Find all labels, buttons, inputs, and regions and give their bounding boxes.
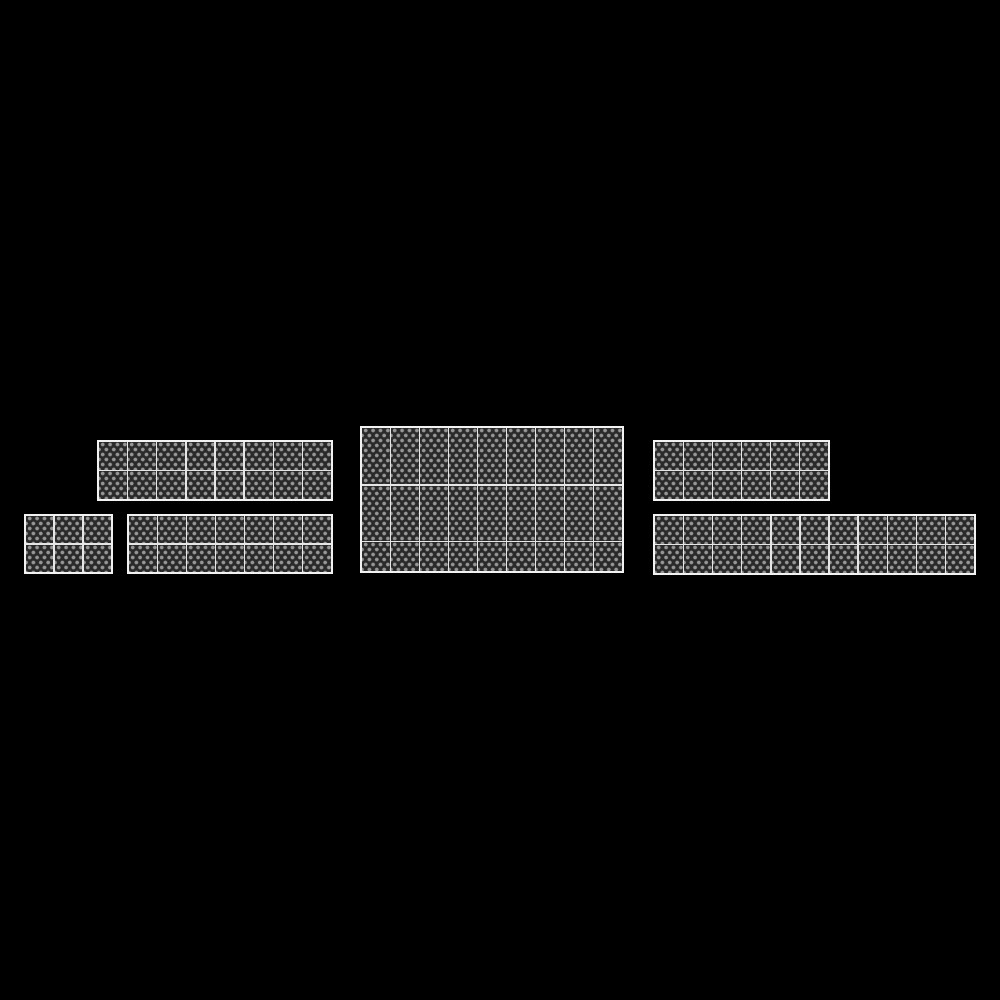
solar-panel-cell[interactable]: [157, 442, 185, 470]
solar-panel-cell[interactable]: [245, 545, 273, 572]
solar-panel-cell[interactable]: [684, 442, 712, 470]
solar-panel-cell[interactable]: [128, 471, 156, 499]
solar-panel-cell[interactable]: [157, 471, 185, 499]
solar-panel-cell[interactable]: [187, 471, 215, 499]
solar-panel-cell[interactable]: [26, 516, 53, 543]
solar-panel-cell[interactable]: [129, 545, 157, 572]
solar-panel-cell[interactable]: [771, 442, 799, 470]
solar-panel-cell[interactable]: [830, 545, 858, 573]
solar-panel-cell[interactable]: [655, 516, 683, 544]
solar-panel-cell[interactable]: [449, 486, 477, 541]
solar-panel-cell[interactable]: [684, 471, 712, 499]
solar-panel-cell[interactable]: [391, 428, 419, 484]
solar-panel-cell[interactable]: [655, 442, 683, 470]
solar-panel-cell[interactable]: [742, 545, 770, 573]
solar-panel-cell[interactable]: [917, 545, 945, 573]
solar-panel-cell[interactable]: [713, 471, 741, 499]
solar-panel-cell[interactable]: [99, 471, 127, 499]
solar-panel-cell[interactable]: [536, 428, 564, 484]
solar-panel-cell[interactable]: [830, 516, 858, 544]
solar-panel-cell[interactable]: [800, 442, 828, 470]
solar-panel-cell[interactable]: [888, 545, 916, 573]
solar-panel-cell[interactable]: [859, 545, 887, 573]
design-canvas: [0, 0, 1000, 1000]
solar-panel-cell[interactable]: [478, 428, 506, 484]
solar-panel-cell[interactable]: [245, 442, 273, 470]
solar-panel-cell[interactable]: [507, 428, 535, 484]
solar-panel-cell[interactable]: [565, 486, 593, 541]
solar-panel-cell[interactable]: [917, 516, 945, 544]
solar-panel-cell[interactable]: [55, 545, 82, 572]
solar-panel-cell[interactable]: [742, 442, 770, 470]
array-6: [653, 514, 976, 575]
solar-panel-cell[interactable]: [713, 516, 741, 544]
solar-panel-cell[interactable]: [158, 545, 186, 572]
solar-panel-cell[interactable]: [888, 516, 916, 544]
solar-panel-cell[interactable]: [274, 516, 302, 543]
array-4: [360, 426, 624, 573]
solar-panel-cell[interactable]: [84, 545, 111, 572]
solar-panel-cell[interactable]: [362, 542, 390, 571]
solar-panel-cell[interactable]: [391, 542, 419, 571]
solar-panel-cell[interactable]: [216, 471, 244, 499]
solar-panel-cell[interactable]: [478, 542, 506, 571]
solar-panel-cell[interactable]: [420, 428, 448, 484]
solar-panel-cell[interactable]: [158, 516, 186, 543]
solar-panel-cell[interactable]: [84, 516, 111, 543]
solar-panel-cell[interactable]: [274, 442, 302, 470]
solar-panel-cell[interactable]: [420, 486, 448, 541]
solar-panel-cell[interactable]: [303, 471, 331, 499]
solar-panel-cell[interactable]: [594, 542, 622, 571]
solar-panel-cell[interactable]: [946, 545, 974, 573]
solar-panel-cell[interactable]: [26, 545, 53, 572]
solar-panel-cell[interactable]: [594, 486, 622, 541]
array-2: [24, 514, 113, 574]
solar-panel-cell[interactable]: [565, 428, 593, 484]
solar-panel-cell[interactable]: [303, 545, 331, 572]
solar-panel-cell[interactable]: [187, 516, 215, 543]
solar-panel-cell[interactable]: [303, 516, 331, 543]
array-5: [653, 440, 830, 501]
solar-panel-cell[interactable]: [99, 442, 127, 470]
solar-panel-cell[interactable]: [713, 442, 741, 470]
solar-panel-cell[interactable]: [742, 471, 770, 499]
solar-panel-cell[interactable]: [565, 542, 593, 571]
solar-panel-cell[interactable]: [507, 542, 535, 571]
solar-panel-cell[interactable]: [245, 516, 273, 543]
solar-panel-cell[interactable]: [274, 545, 302, 572]
solar-panel-cell[interactable]: [536, 486, 564, 541]
solar-panel-cell[interactable]: [128, 442, 156, 470]
solar-panel-cell[interactable]: [245, 471, 273, 499]
solar-panel-cell[interactable]: [362, 486, 390, 541]
array-3: [127, 514, 333, 574]
solar-panel-cell[interactable]: [187, 442, 215, 470]
solar-panel-cell[interactable]: [449, 542, 477, 571]
solar-panel-cell[interactable]: [772, 545, 800, 573]
solar-panel-cell[interactable]: [771, 471, 799, 499]
solar-panel-cell[interactable]: [216, 516, 244, 543]
solar-panel-cell[interactable]: [187, 545, 215, 572]
solar-panel-cell[interactable]: [684, 545, 712, 573]
solar-panel-cell[interactable]: [655, 545, 683, 573]
solar-panel-cell[interactable]: [420, 542, 448, 571]
solar-panel-cell[interactable]: [536, 542, 564, 571]
solar-panel-cell[interactable]: [129, 516, 157, 543]
solar-panel-cell[interactable]: [655, 471, 683, 499]
solar-panel-cell[interactable]: [946, 516, 974, 544]
solar-panel-cell[interactable]: [684, 516, 712, 544]
array-1: [97, 440, 333, 501]
solar-panel-cell[interactable]: [801, 516, 829, 544]
solar-panel-cell[interactable]: [449, 428, 477, 484]
solar-panel-cell[interactable]: [772, 516, 800, 544]
solar-panel-cell[interactable]: [55, 516, 82, 543]
solar-panel-cell[interactable]: [274, 471, 302, 499]
solar-panel-cell[interactable]: [800, 471, 828, 499]
solar-panel-cell[interactable]: [713, 545, 741, 573]
solar-panel-cell[interactable]: [216, 545, 244, 572]
solar-panel-cell[interactable]: [362, 428, 390, 484]
solar-panel-cell[interactable]: [594, 428, 622, 484]
solar-panel-cell[interactable]: [507, 486, 535, 541]
solar-panel-cell[interactable]: [303, 442, 331, 470]
solar-panel-cell[interactable]: [391, 486, 419, 541]
solar-panel-cell[interactable]: [859, 516, 887, 544]
solar-panel-cell[interactable]: [216, 442, 244, 470]
solar-panel-cell[interactable]: [742, 516, 770, 544]
solar-panel-cell[interactable]: [478, 486, 506, 541]
solar-panel-cell[interactable]: [801, 545, 829, 573]
